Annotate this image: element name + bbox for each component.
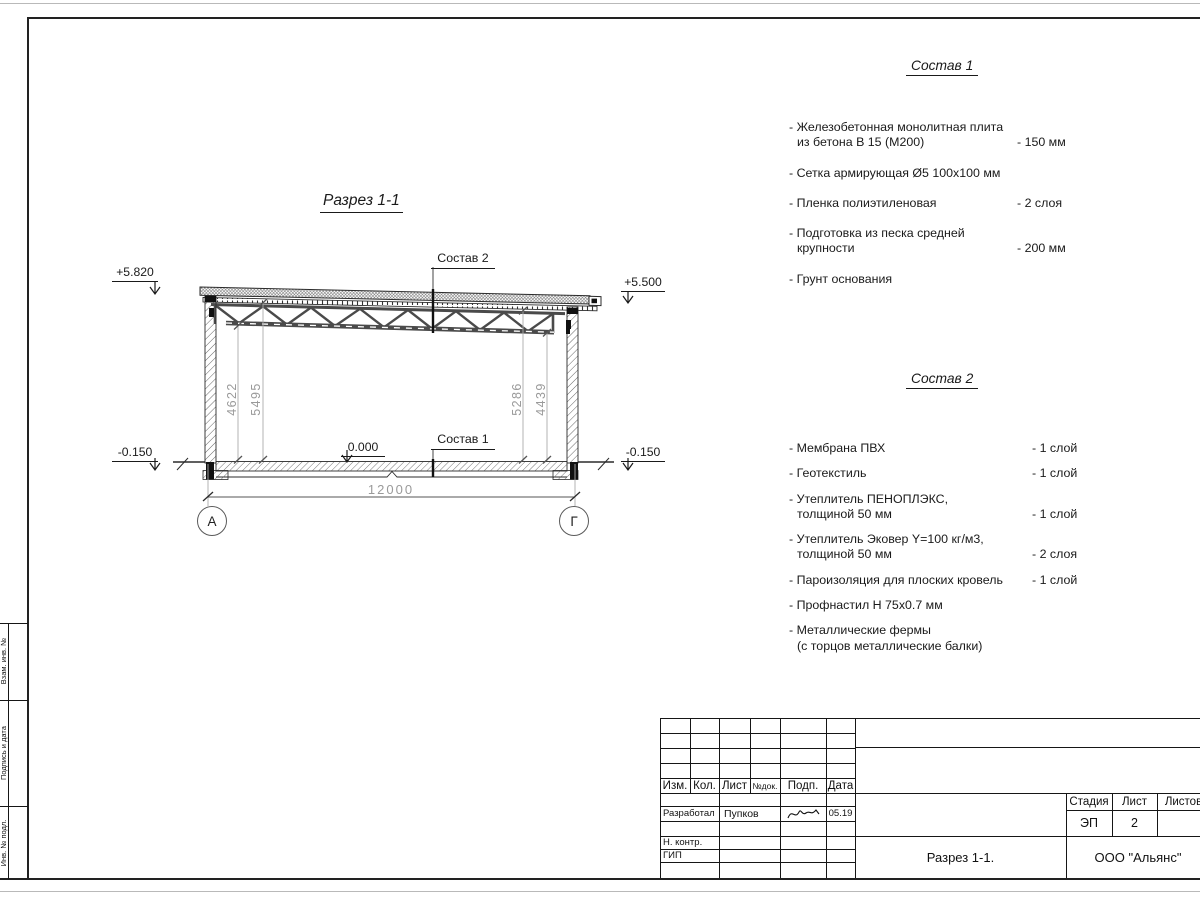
tb-razrabotal-label: Разработал (661, 806, 721, 821)
list-item: - Профнастил Н 75х0.7 мм (789, 598, 1094, 613)
tb-company: ООО "Альянс" (1066, 836, 1200, 878)
dim-12000: 12000 (351, 482, 431, 497)
elevation-bottom-left: -0.150 (112, 445, 158, 462)
item-value: - 1 слой (1032, 466, 1077, 481)
tb-sheet-label: Лист (1112, 793, 1157, 810)
item-text: - Сетка армирующая Ø5 100х100 мм (789, 166, 1094, 181)
dim-4439: 4439 (534, 369, 548, 429)
tb-razrabotal-date: 05.19 (826, 806, 855, 821)
floor-composition-ref: Состав 1 (431, 432, 495, 450)
tb-stage-value: ЭП (1066, 810, 1112, 836)
list-item: - Пленка полиэтиленовая - 2 слоя (789, 196, 1094, 211)
item-text: - Металлические фермы (789, 623, 1094, 638)
item-value: - 1 слой (1032, 573, 1077, 588)
item-value: - 1 слой (1032, 507, 1077, 522)
roof-composition-ref: Состав 2 (431, 251, 495, 269)
list-item: - Металлические фермы (с торцов металлич… (789, 623, 1094, 654)
list-item: - Сетка армирующая Ø5 100х100 мм (789, 166, 1094, 181)
sostav1-list: - Железобетонная монолитная плита из бет… (789, 120, 1094, 302)
tb-razrabotal-name: Пупков (722, 806, 780, 821)
list-item: - Мембрана ПВХ - 1 слой (789, 441, 1094, 456)
tb-sheet-value: 2 (1112, 810, 1157, 836)
tb-col-izm: Изм. (660, 778, 690, 793)
list-item: - Геотекстиль - 1 слой (789, 466, 1094, 481)
signature (785, 806, 821, 827)
dim-5495: 5495 (249, 369, 263, 429)
list-item: - Утеплитель Эковер Y=100 кг/м3, толщино… (789, 532, 1094, 563)
item-text: - Профнастил Н 75х0.7 мм (789, 598, 1094, 613)
sostav1-title: Состав 1 (906, 58, 978, 76)
item-text: - Утеплитель ПЕНОПЛЭКС, (789, 492, 1094, 507)
tb-sheets-label: Листов (1157, 793, 1200, 810)
list-item: - Утеплитель ПЕНОПЛЭКС, толщиной 50 мм -… (789, 492, 1094, 523)
elevation-bottom-right: -0.150 (621, 445, 665, 462)
item-text: (с торцов металлические балки) (797, 639, 1094, 654)
axis-bubble-a: А (197, 506, 227, 536)
item-text: - Утеплитель Эковер Y=100 кг/м3, (789, 532, 1094, 547)
list-item: - Железобетонная монолитная плита из бет… (789, 120, 1094, 151)
tb-nkontr-label: Н. контр. (661, 836, 720, 849)
item-value: - 200 мм (1017, 241, 1066, 256)
sostav2-title: Состав 2 (906, 371, 978, 389)
item-text: - Железобетонная монолитная плита (789, 120, 1094, 135)
item-value: - 2 слоя (1032, 547, 1077, 562)
elevation-top-left: +5.820 (112, 265, 158, 282)
tb-doc-name: Разрез 1-1. (855, 836, 1066, 878)
elevation-zero: 0.000 (341, 440, 385, 457)
list-item: - Пароизоляция для плоских кровель - 1 с… (789, 573, 1094, 588)
drawing-sheet: { "margin_boxes": { "box1": "Взам. инв. … (0, 0, 1200, 900)
dim-4622: 4622 (225, 369, 239, 429)
list-item: - Грунт основания (789, 272, 1094, 287)
item-text: - Грунт основания (789, 272, 1094, 287)
sostav2-list: - Мембрана ПВХ - 1 слой - Геотекстиль - … (789, 441, 1094, 664)
tb-col-list: Лист (719, 778, 750, 793)
elevation-top-right: +5.500 (621, 275, 665, 292)
tb-col-ndok: №док. (750, 778, 780, 793)
tb-stage-label: Стадия (1066, 793, 1112, 810)
tb-col-data: Дата (826, 778, 855, 793)
tb-col-kol: Кол. (690, 778, 719, 793)
floor-slab (173, 458, 614, 480)
item-value: - 150 мм (1017, 135, 1066, 150)
axis-bubble-g: Г (559, 506, 589, 536)
item-value: - 1 слой (1032, 441, 1077, 456)
item-value: - 2 слоя (1017, 196, 1062, 211)
tb-gip-label: ГИП (661, 849, 720, 862)
item-text: - Подготовка из песка средней (789, 226, 1094, 241)
dim-5286: 5286 (510, 369, 524, 429)
tb-col-podp: Подп. (780, 778, 826, 793)
section-title: Разрез 1-1 (320, 192, 403, 213)
list-item: - Подготовка из песка средней крупности … (789, 226, 1094, 257)
